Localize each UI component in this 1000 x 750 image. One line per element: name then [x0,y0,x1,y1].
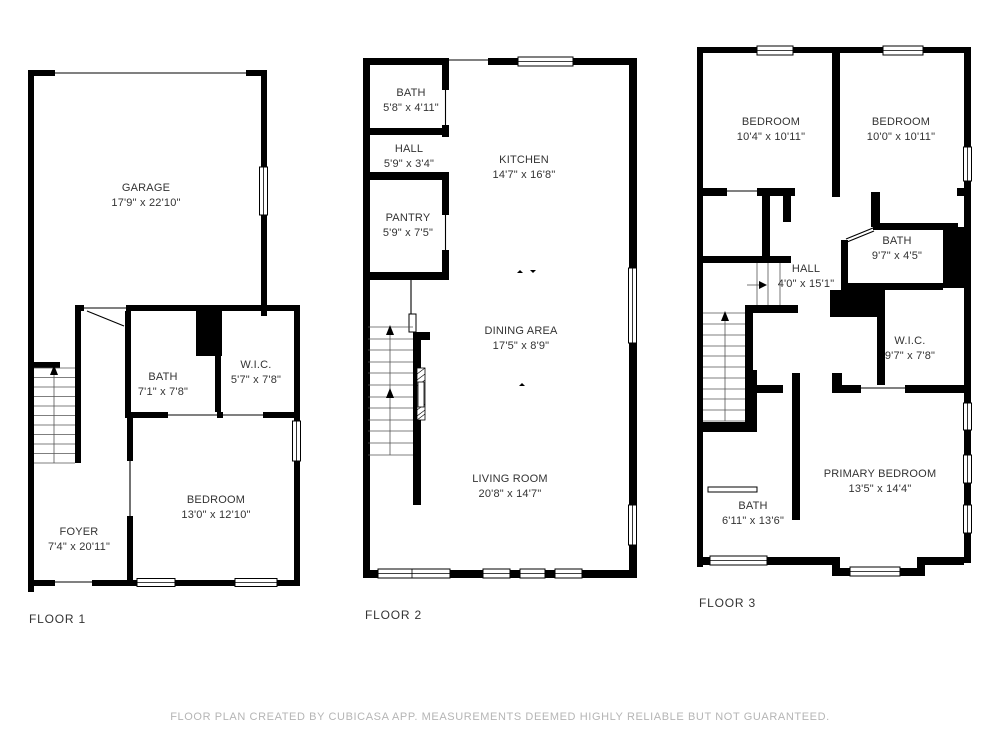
room-label-bath-bottom-f3: BATH 6'11" x 13'6" [722,499,784,529]
floor-1-plan: GARAGE 17'9" x 22'10" BATH 7'1" x 7'8" W… [25,65,310,600]
room-label-bath-f2: BATH 5'8" x 4'11" [383,86,439,116]
floor-1-walls-svg [25,65,310,600]
floor-3-plan: BEDROOM 10'4" x 10'11" BEDROOM 10'0" x 1… [693,42,978,587]
room-label-bedroom-f1: BEDROOM 13'0" x 12'10" [181,493,250,523]
room-label-bath-f1: BATH 7'1" x 7'8" [138,370,188,400]
room-label-dining-area: DINING AREA 17'5" x 8'9" [484,324,557,354]
room-label-living-room: LIVING ROOM 20'8" x 14'7" [472,472,548,502]
floor-1-walls [28,70,300,592]
disclaimer-text: FLOOR PLAN CREATED BY CUBICASA APP. MEAS… [0,711,1000,723]
floor-3-stairs-up-arrow [721,311,729,321]
floor-1-label: FLOOR 1 [29,612,86,626]
room-label-bath-top-f3: BATH 9'7" x 4'5" [872,234,922,264]
room-label-hall-f2: HALL 5'9" x 3'4" [384,142,434,172]
room-label-wic-f3: W.I.C. 9'7" x 7'8" [885,334,935,364]
floor-plan-page: { "page": { "footer": "FLOOR PLAN CREATE… [0,0,1000,750]
floor-3-stairs [703,263,780,421]
room-label-bedroom-1-f3: BEDROOM 10'4" x 10'11" [737,115,805,145]
floor-1-stairs [34,368,75,463]
floor-2-walls-svg [360,52,645,592]
room-label-hall-f3: HALL 4'0" x 15'1" [778,262,835,292]
floor-3-stairs-right-arrow [759,281,767,289]
floor-2-stair-railing [417,368,425,420]
floor-2-stairs-up-arrow [386,325,394,335]
room-label-wic-f1: W.I.C. 5'7" x 7'8" [231,358,281,388]
room-label-garage: GARAGE 17'9" x 22'10" [111,181,180,211]
room-label-pantry: PANTRY 5'9" x 7'5" [383,211,433,241]
room-label-primary-bedroom: PRIMARY BEDROOM 13'5" x 14'4" [824,467,937,497]
floor-2-plan: BATH 5'8" x 4'11" HALL 5'9" x 3'4" PANTR… [360,52,645,592]
floor-2-label: FLOOR 2 [365,608,422,622]
floor-2-stairs-up-arrow-2 [386,388,394,398]
floor-3-label: FLOOR 3 [699,596,756,610]
room-label-bedroom-2-f3: BEDROOM 10'0" x 10'11" [867,115,935,145]
room-label-kitchen: KITCHEN 14'7" x 16'8" [493,153,556,183]
room-label-foyer: FOYER 7'4" x 20'11" [48,525,110,555]
